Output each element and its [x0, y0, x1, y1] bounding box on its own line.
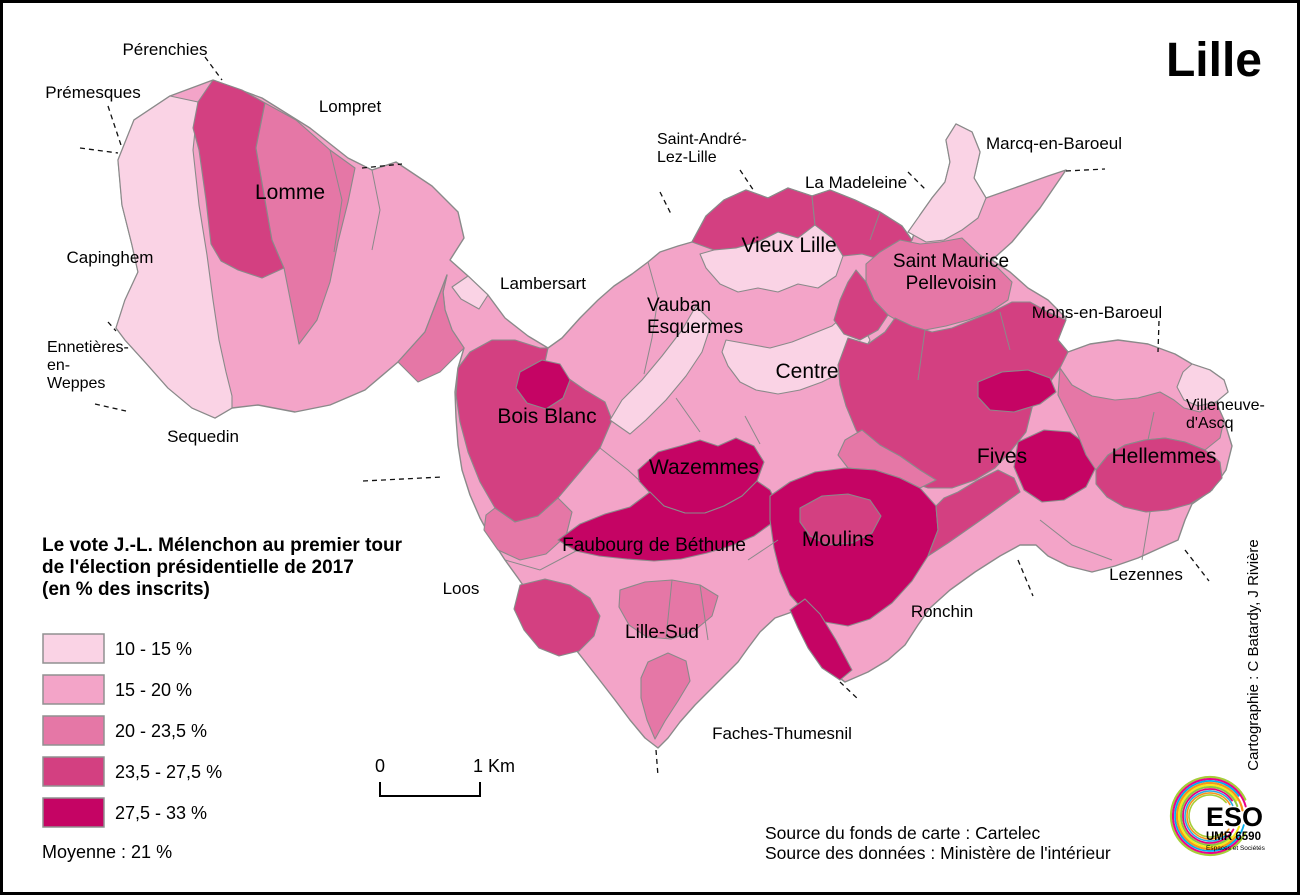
leader-line	[1066, 169, 1105, 171]
map-page: PérenchiesPrémesquesLompretLommeCapinghe…	[0, 0, 1300, 895]
eso-logo: ESO UMR 6590 Espaces et Sociétés	[1171, 777, 1266, 855]
legend-swatch-4	[43, 757, 104, 786]
scale-unit-label: 1 Km	[473, 756, 515, 776]
map-label-vieux-lille: Vieux Lille	[741, 234, 836, 257]
leader-line	[95, 404, 126, 411]
map-label-hellemmes: Hellemmes	[1111, 445, 1216, 468]
legend-label-4: 23,5 - 27,5 %	[115, 762, 222, 782]
leader-line	[1185, 550, 1209, 581]
map-label-faches: Faches-Thumesnil	[712, 724, 852, 743]
scale-zero-label: 0	[375, 756, 385, 776]
page-title: Lille	[1166, 34, 1262, 87]
map-label-sequedin: Sequedin	[167, 427, 239, 446]
legend-title-line3: (en % des inscrits)	[42, 579, 210, 600]
map-label-la-madeleine: La Madeleine	[805, 173, 907, 192]
map-label-saint-andre: Saint-André-Lez-Lille	[657, 131, 747, 166]
scale-bar-bracket	[380, 782, 480, 796]
legend-rows: 10 - 15 %15 - 20 %20 - 23,5 %23,5 - 27,5…	[43, 634, 222, 827]
map-label-ennetieres: Ennetières-en-Weppes	[47, 339, 129, 392]
leader-line	[740, 170, 754, 191]
eso-logo-text: ESO	[1206, 802, 1263, 832]
map-label-lomme: Lomme	[255, 181, 325, 204]
leader-line	[108, 106, 122, 148]
map-label-moulins: Moulins	[802, 528, 874, 551]
map-label-lompret: Lompret	[319, 97, 382, 116]
map-label-st-maurice: Saint MauricePellevoisin	[893, 251, 1009, 294]
map-label-lezennes: Lezennes	[1109, 565, 1183, 584]
source-line1: Source du fonds de carte : Cartelec	[765, 823, 1041, 843]
leader-line	[840, 682, 859, 700]
leader-line	[205, 57, 222, 80]
map-label-marcq: Marcq-en-Baroeul	[986, 134, 1122, 153]
map-label-lambersart: Lambersart	[500, 274, 586, 293]
leader-line	[108, 322, 116, 331]
legend-average: Moyenne : 21 %	[42, 842, 172, 862]
map-label-bois-blanc: Bois Blanc	[497, 405, 596, 428]
legend-swatch-1	[43, 634, 104, 663]
map-label-villeneuve: Villeneuve-d'Ascq	[1186, 397, 1265, 432]
legend-swatch-5	[43, 798, 104, 827]
legend-label-1: 10 - 15 %	[115, 639, 192, 659]
map-label-loos: Loos	[443, 579, 480, 598]
source-line2: Source des données : Ministère de l'inté…	[765, 843, 1111, 863]
map-label-premesques: Prémesques	[45, 83, 140, 102]
map-label-faubourg: Faubourg de Béthune	[562, 535, 746, 556]
legend-label-5: 27,5 - 33 %	[115, 803, 207, 823]
legend-swatch-3	[43, 716, 104, 745]
leader-line	[656, 750, 658, 776]
map-label-wazemmes: Wazemmes	[649, 456, 759, 479]
map-label-centre: Centre	[775, 360, 838, 383]
eso-logo-subtitle: Espaces et Sociétés	[1206, 845, 1266, 852]
map-label-capinghem: Capinghem	[67, 248, 154, 267]
map-label-mons: Mons-en-Baroeul	[1032, 303, 1162, 322]
map-canvas: PérenchiesPrémesquesLompretLommeCapinghe…	[0, 0, 1300, 895]
legend-title-line1: Le vote J.-L. Mélenchon au premier tour	[42, 535, 403, 556]
map-label-lille-sud: Lille-Sud	[625, 622, 699, 643]
map-label-perenchies: Pérenchies	[122, 40, 207, 59]
map-label-ronchin: Ronchin	[911, 602, 973, 621]
legend: Le vote J.-L. Mélenchon au premier tour …	[42, 535, 403, 862]
legend-swatch-2	[43, 675, 104, 704]
legend-label-3: 20 - 23,5 %	[115, 721, 207, 741]
cartography-credit: Cartographie : C Batardy, J Rivière	[1245, 539, 1262, 770]
scale-bar: 0 1 Km	[375, 756, 515, 796]
legend-label-2: 15 - 20 %	[115, 680, 192, 700]
leader-line	[363, 477, 442, 481]
map-label-fives: Fives	[977, 445, 1027, 468]
legend-title-line2: de l'élection présidentielle de 2017	[42, 557, 354, 578]
leader-line	[1018, 560, 1033, 596]
leader-line	[660, 192, 671, 214]
leader-line	[908, 172, 926, 190]
eso-logo-umr: UMR 6590	[1206, 831, 1261, 843]
leader-line	[80, 148, 118, 153]
